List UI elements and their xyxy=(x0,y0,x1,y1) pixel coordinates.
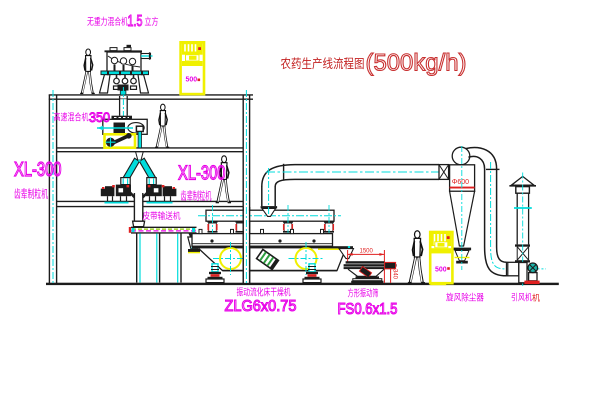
svg-text:ZLG6x0.75: ZLG6x0.75 xyxy=(225,298,297,315)
svg-text:方形振动筛: 方形振动筛 xyxy=(348,288,379,300)
svg-text:引风机: 引风机 xyxy=(511,292,532,303)
svg-text:振动流化床干燥机: 振动流化床干燥机 xyxy=(237,287,291,299)
svg-text:(500kg/h): (500kg/h) xyxy=(366,50,467,77)
svg-text:500: 500 xyxy=(435,267,447,274)
svg-text:皮带输送机: 皮带输送机 xyxy=(143,210,181,221)
svg-text:FS0.6x1.5: FS0.6x1.5 xyxy=(338,301,398,318)
svg-text:无重力混合机: 无重力混合机 xyxy=(87,16,128,28)
svg-text:500: 500 xyxy=(186,77,198,84)
svg-text:高速混合机: 高速混合机 xyxy=(54,112,89,124)
svg-text:XL-300: XL-300 xyxy=(178,163,226,185)
svg-text:立方: 立方 xyxy=(145,16,159,28)
svg-text:Φ600: Φ600 xyxy=(452,179,469,186)
svg-text:农药生产线流程图: 农药生产线流程图 xyxy=(281,56,365,71)
svg-text:旋风除尘器: 旋风除尘器 xyxy=(446,292,484,303)
svg-text:340: 340 xyxy=(392,269,398,280)
svg-text:齿辈制粒机: 齿辈制粒机 xyxy=(14,187,48,201)
svg-text:1500: 1500 xyxy=(360,249,374,255)
svg-text:齿辈制粒机: 齿辈制粒机 xyxy=(181,189,212,203)
svg-text:XL-300: XL-300 xyxy=(14,159,62,181)
svg-text:机: 机 xyxy=(532,293,540,303)
svg-text:1.5: 1.5 xyxy=(128,13,143,30)
svg-text:350: 350 xyxy=(89,110,110,125)
